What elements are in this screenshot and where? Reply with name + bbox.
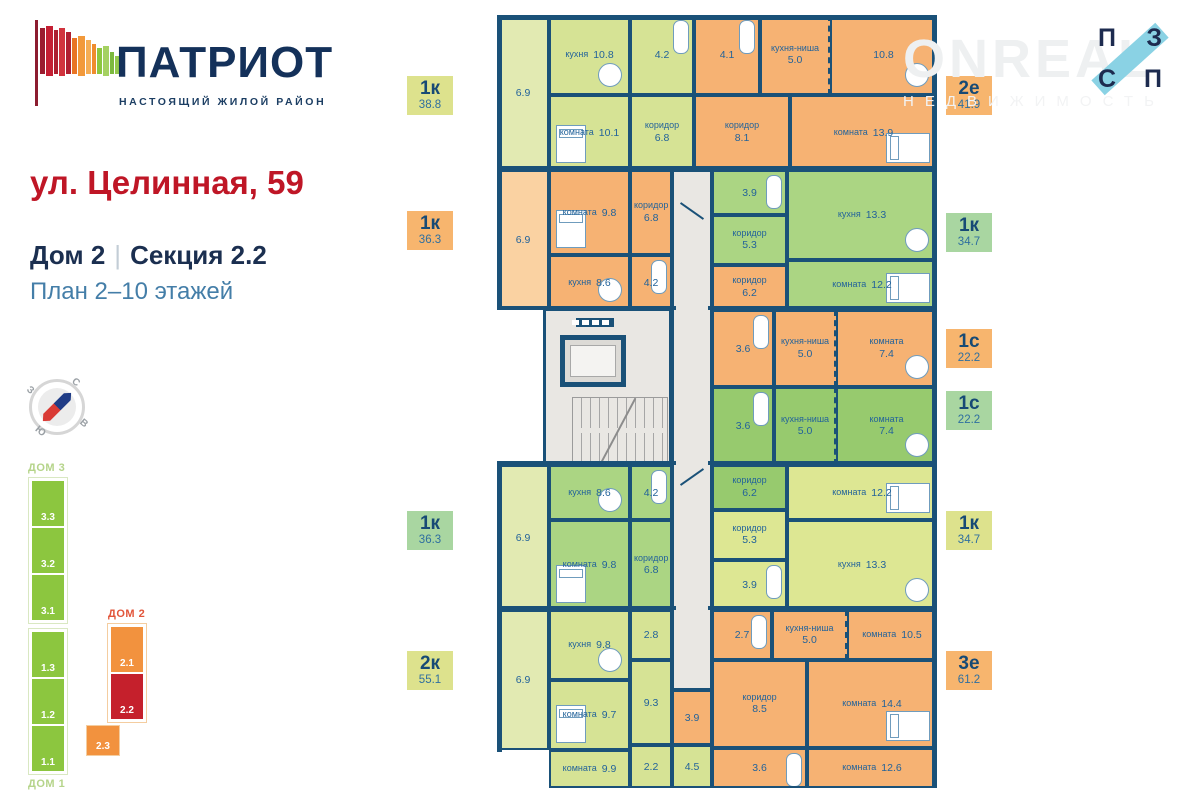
furniture-table — [905, 433, 929, 457]
site-section-3.3: 3.3 — [32, 481, 64, 526]
room-кухня: кухня8.6 — [549, 465, 630, 520]
room-area: 6.9 — [497, 15, 549, 170]
room-комната: комната9.7 — [549, 680, 630, 750]
room-комната: комната10.5 — [847, 610, 937, 660]
floor-plan: комната12.63.6комната14.4коридор8.5комна… — [497, 15, 937, 788]
furniture-table — [905, 355, 929, 379]
flag-bar — [54, 30, 58, 74]
dom2-section-offset: 2.3 — [86, 725, 120, 756]
site-map-dom2: ДОМ 2 2.12.2 2.3 — [86, 608, 148, 756]
room-area: 4.1 — [694, 15, 760, 95]
apartment-tag-1с: 1с22.2 — [946, 391, 992, 430]
room-кухня: кухня13.3 — [787, 170, 937, 260]
site-section-1.1: 1.1 — [32, 726, 64, 771]
brand-logo: ПАТРИОТ НАСТОЯЩИЙ ЖИЛОЙ РАЙОН — [30, 16, 350, 116]
furniture-bath — [786, 753, 802, 787]
room-area: 3.9 — [672, 690, 712, 745]
room-комната: комната7.4 — [836, 310, 937, 387]
room-комната: комната9.8 — [549, 170, 630, 255]
flag-bar — [46, 26, 53, 76]
pzsp-letter-br: П — [1144, 67, 1162, 92]
room-кухня-ниша: кухня-ниша5.0 — [774, 387, 836, 465]
floor-plan-page: ПАТРИОТ НАСТОЯЩИЙ ЖИЛОЙ РАЙОН ул. Целинн… — [0, 0, 1200, 790]
site-section-2.1: 2.1 — [111, 627, 143, 672]
wall-row4-r — [708, 606, 937, 610]
wall-right — [932, 15, 937, 788]
site-section-1.2: 1.2 — [32, 679, 64, 724]
flag-bars — [40, 20, 121, 76]
site-section-2.2: 2.2 — [111, 674, 143, 719]
furniture-bedh — [886, 273, 930, 303]
room-area: 2.2 — [630, 745, 672, 788]
room-кухня: кухня10.8 — [549, 15, 630, 95]
room-коридор: коридор6.2 — [712, 465, 787, 510]
staircase — [572, 397, 668, 463]
flag-bar — [59, 28, 65, 76]
apartment-tag-1к: 1к38.8 — [407, 76, 453, 115]
room-area: 3.6 — [712, 748, 807, 788]
room-area: 2.7 — [712, 610, 772, 660]
room-коридор: коридор6.2 — [712, 265, 787, 310]
room-кухня-ниша: кухня-ниша5.0 — [772, 610, 847, 660]
apartment-tag-2е: 2е41.9 — [946, 76, 992, 115]
room-кухня-ниша: кухня-ниша5.0 — [774, 310, 836, 387]
room-area: 3.6 — [712, 310, 774, 387]
furniture-bath — [766, 175, 782, 209]
room-комната: комната12.2 — [787, 465, 937, 520]
furniture-bath — [753, 392, 769, 426]
apartment-tag-2к: 2к55.1 — [407, 651, 453, 690]
room-комната: комната9.9 — [549, 750, 630, 788]
furniture-bath — [751, 615, 767, 649]
pzsp-letter-tr: З — [1146, 26, 1162, 51]
room-коридор: коридор5.3 — [712, 215, 787, 265]
room-area: 6.9 — [497, 170, 549, 310]
dom2-label: ДОМ 2 — [108, 608, 148, 620]
flag-bar — [66, 32, 71, 74]
room-area: 3.9 — [712, 170, 787, 215]
room-коридор: коридор6.8 — [630, 95, 694, 170]
wall-row2-l — [497, 306, 676, 310]
house-label: Дом 2 — [30, 240, 105, 270]
furniture-bath — [739, 20, 755, 54]
wall-top — [497, 15, 937, 20]
room-кухня: кухня13.3 — [787, 520, 937, 610]
elevator — [560, 335, 626, 387]
dom1-label: ДОМ 1 — [28, 778, 68, 790]
compass-icon: С В Ю З — [26, 376, 88, 438]
room-area: 4.2 — [630, 465, 672, 520]
apartment-tag-1к: 1к36.3 — [407, 511, 453, 550]
room-area: 9.3 — [630, 660, 672, 745]
dom3-label: ДОМ 3 — [28, 462, 68, 474]
room-комната: комната9.8 — [549, 520, 630, 610]
room-area: 10.8 — [830, 15, 937, 95]
room-комната: комната12.2 — [787, 260, 937, 310]
room-комната: комната13.9 — [790, 95, 937, 170]
dom1-sections: 1.31.21.1 — [28, 628, 68, 775]
wall-left-upper — [497, 15, 502, 310]
furniture-table — [905, 63, 929, 87]
flag-icon — [30, 16, 120, 111]
room-коридор: коридор5.3 — [712, 510, 787, 560]
room-комната: комната14.4 — [807, 660, 937, 748]
flag-bar — [110, 52, 114, 74]
apartment-tag-3е: 3е61.2 — [946, 651, 992, 690]
apartment-tag-1к: 1к34.7 — [946, 511, 992, 550]
room-area: 3.9 — [712, 560, 787, 610]
stair-elevator-zone — [543, 308, 672, 467]
wall-row3-l — [497, 461, 676, 465]
room-area: 3.6 — [712, 387, 774, 465]
furniture-table — [905, 578, 929, 602]
site-map-dom1: 1.31.21.1 ДОМ 1 — [28, 628, 68, 790]
furniture-table — [905, 228, 929, 252]
dom3-sections: 3.33.23.1 — [28, 477, 68, 624]
apartment-tag-1к: 1к34.7 — [946, 213, 992, 252]
brand-name: ПАТРИОТ — [116, 38, 333, 88]
room-коридор: коридор8.5 — [712, 660, 807, 748]
furniture-bath — [753, 315, 769, 349]
brand-tagline: НАСТОЯЩИЙ ЖИЛОЙ РАЙОН — [119, 96, 326, 108]
room-area: 4.2 — [630, 15, 694, 95]
room-комната: комната7.4 — [836, 387, 937, 465]
pzsp-letter-bl: С — [1098, 67, 1116, 92]
flag-pole — [35, 20, 38, 106]
site-section-3.2: 3.2 — [32, 528, 64, 573]
pzsp-logo: П З С П — [1098, 26, 1162, 92]
mailboxes — [568, 318, 614, 327]
room-комната: комната10.1 — [549, 95, 630, 170]
site-map-dom3: ДОМ 3 3.33.23.1 — [28, 462, 68, 624]
house-section-title: Дом 2|Секция 2.2 — [30, 240, 267, 271]
room-коридор: коридор8.1 — [694, 95, 790, 170]
pzsp-letter-tl: П — [1098, 26, 1116, 51]
flag-bar — [86, 40, 91, 74]
floors-label: План 2–10 этажей — [30, 278, 233, 306]
room-area: 6.9 — [497, 610, 549, 750]
apartment-tag-1к: 1к36.3 — [407, 211, 453, 250]
furniture-bath — [766, 565, 782, 599]
room-area: 2.8 — [630, 610, 672, 660]
dom2-sections: 2.12.2 — [107, 623, 147, 723]
section-label: Секция 2.2 — [130, 240, 267, 270]
room-кухня: кухня9.8 — [549, 610, 630, 680]
room-комната: комната12.6 — [807, 748, 937, 788]
room-кухня: кухня8.6 — [549, 255, 630, 310]
furniture-bed — [556, 565, 586, 603]
flag-bar — [97, 48, 102, 74]
apartment-tag-1с: 1с22.2 — [946, 329, 992, 368]
site-section-3.1: 3.1 — [32, 575, 64, 620]
site-section-1.3: 1.3 — [32, 632, 64, 677]
wall-row3-r — [708, 461, 937, 465]
flag-bar — [103, 46, 109, 76]
room-кухня-ниша: кухня-ниша5.0 — [760, 15, 830, 95]
divider: | — [114, 240, 121, 270]
furniture-bedh — [886, 483, 930, 513]
room-коридор: коридор6.8 — [630, 520, 672, 610]
flag-bar — [40, 28, 45, 74]
room-area: 4.2 — [630, 255, 672, 310]
flag-bar — [92, 44, 96, 74]
furniture-table — [598, 63, 622, 87]
wall-row2-r — [708, 306, 937, 310]
furniture-bedh — [886, 711, 930, 741]
flag-bar — [72, 38, 77, 74]
wall-row4-l — [497, 606, 676, 610]
common-corridor — [672, 170, 712, 690]
flag-bar — [78, 36, 85, 76]
furniture-bath — [673, 20, 689, 54]
room-area: 6.9 — [497, 465, 549, 610]
wall-row1 — [497, 166, 937, 170]
room-area: 4.5 — [672, 745, 712, 788]
room-коридор: коридор6.8 — [630, 170, 672, 255]
furniture-table — [598, 648, 622, 672]
address-title: ул. Целинная, 59 — [30, 164, 304, 202]
